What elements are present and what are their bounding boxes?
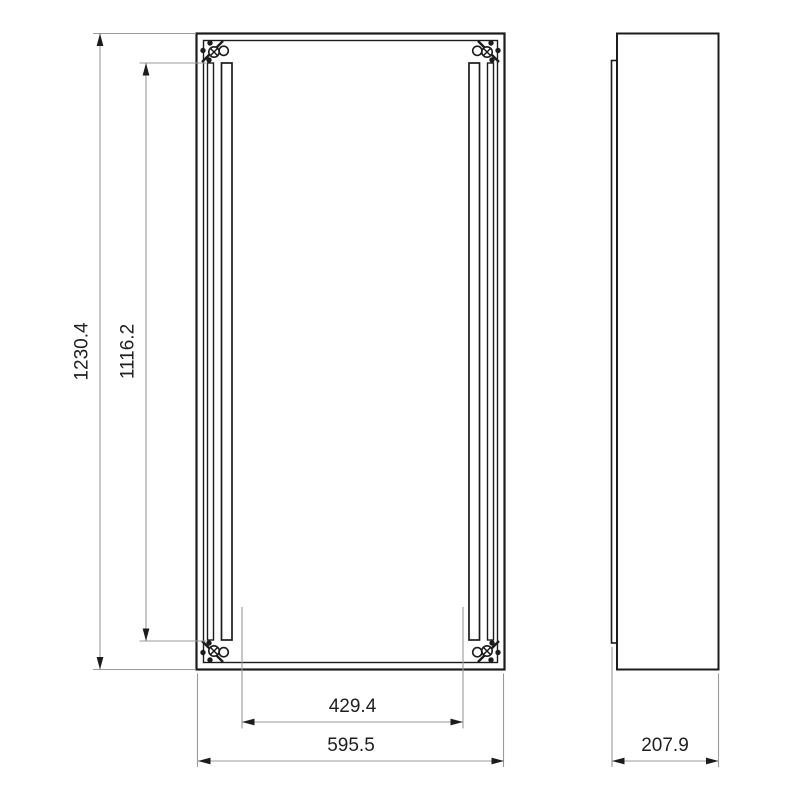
dim-arrow-top	[143, 63, 150, 76]
dim-arrow-bottom	[143, 629, 150, 642]
dim-arrow-bottom	[97, 657, 104, 670]
dim-arrow-left	[198, 758, 211, 765]
dim-arrow-right	[492, 758, 505, 765]
front-view-inner-frame	[204, 41, 498, 663]
dim-text-overall-height: 1230.4	[72, 322, 93, 381]
geometry-layer	[197, 34, 719, 670]
front-view	[197, 34, 505, 670]
dim-text-depth: 207.9	[641, 735, 689, 756]
dim-overall-width: 595.5	[198, 674, 505, 768]
technical-drawing-canvas: 1230.4 1116.2 429.4 595.5	[0, 0, 800, 800]
dim-text-overall-width: 595.5	[327, 735, 375, 756]
dim-arrow-top	[97, 34, 104, 47]
dim-arrow-right	[706, 758, 719, 765]
side-view	[612, 34, 719, 670]
dim-text-rail-height: 1116.2	[118, 324, 139, 379]
dim-arrow-left	[612, 758, 625, 765]
mounting-rail-right-inner	[469, 63, 480, 640]
drawing-svg: 1230.4 1116.2 429.4 595.5	[0, 0, 800, 800]
dim-arrow-right	[451, 719, 464, 726]
side-view-body	[617, 34, 719, 670]
dim-text-rail-spacing: 429.4	[329, 696, 377, 717]
dim-rail-height: 1116.2	[118, 63, 207, 641]
dim-arrow-left	[242, 719, 255, 726]
mounting-rail-right-outer	[488, 63, 494, 640]
mounting-rail-left-inner	[222, 63, 233, 640]
mounting-rail-left-outer	[208, 63, 214, 640]
